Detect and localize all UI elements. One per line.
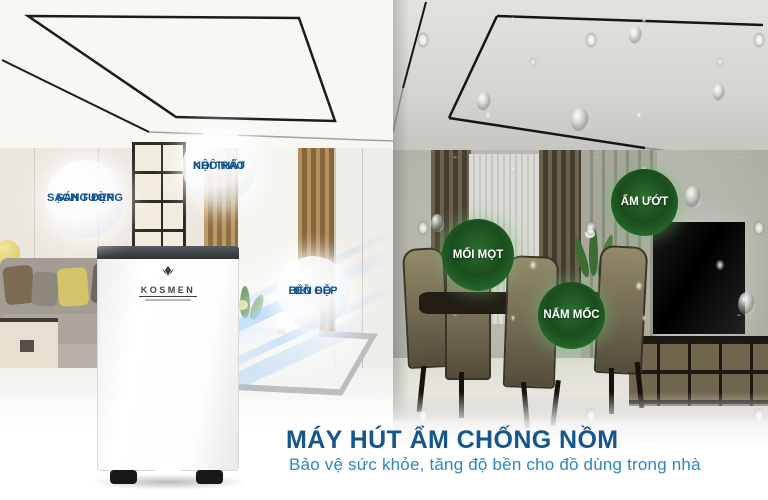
caster-wheel (110, 470, 137, 484)
handle-notch (152, 464, 184, 472)
water-drop-icon (571, 108, 589, 132)
badge-label: KHÔ RÁO (193, 160, 245, 174)
brand-name: KOSMEN (139, 285, 197, 297)
badge-label: ẨM ƯỚT (621, 195, 668, 209)
brand-tagline-bar (145, 299, 191, 301)
dry-ceiling (0, 0, 393, 150)
banner-title: MÁY HÚT ẨM CHỐNG NỒM (286, 426, 619, 455)
water-droplets-overlay (393, 0, 768, 434)
water-drop-icon (477, 92, 491, 111)
side-table-drawer (20, 340, 34, 352)
water-drop-icon (629, 26, 642, 44)
water-drop-icon (685, 186, 701, 208)
benefit-badge-clean-walls: SẠCH TƯỜNG SÁNG ĐẸP (46, 160, 124, 238)
kosmen-diamond-icon (160, 266, 176, 279)
problem-badge-dampness: ẨM ƯỚT (611, 169, 678, 236)
banner-subtitle: Bảo vệ sức khỏe, tăng độ bền cho đồ dùng… (289, 455, 701, 475)
water-drop-icon (738, 292, 755, 315)
control-panel-top (97, 246, 239, 259)
water-drop-icon (431, 214, 444, 232)
pillow (31, 271, 59, 307)
water-drop-icon (713, 84, 725, 101)
caster-wheel (196, 470, 223, 484)
brand-logo: KOSMEN (97, 266, 239, 301)
problem-badge-termites: MỐI MỌT (442, 219, 514, 291)
badge-label: NẤM MỐC (543, 308, 599, 322)
pillow (57, 267, 90, 307)
dehumidifier-product: KOSMEN (97, 246, 239, 486)
badge-label: MỐI MỌT (453, 248, 503, 262)
dehumidifier-ad-banner: MÁY HÚT ẨM CHỐNG NỒM Bảo vệ sức khỏe, tă… (0, 0, 768, 500)
badge-label: SÁNG ĐẸP (56, 192, 113, 206)
benefit-badge-durable-wood: ĐỒ GỖ BỀN ĐẸP (277, 256, 349, 328)
badge-label: BỀN ĐẸP (289, 285, 338, 299)
problem-badge-mold: NẤM MỐC (538, 282, 605, 349)
benefit-badge-dry-interior: NỘI THẤT KHÔ RÁO (182, 130, 256, 204)
dry-ceiling-trim (0, 0, 393, 150)
